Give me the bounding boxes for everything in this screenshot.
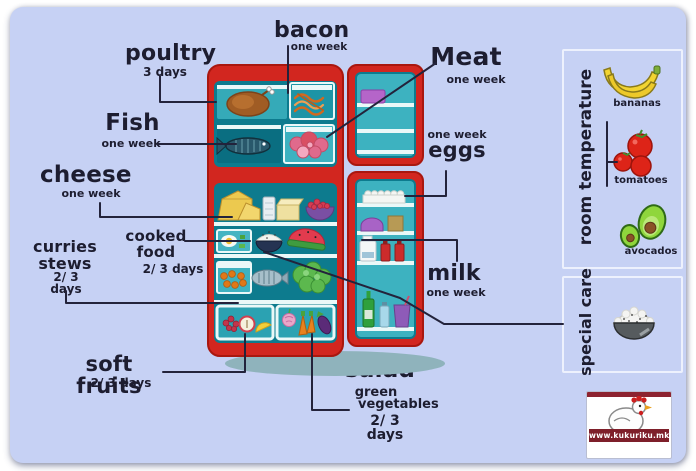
freezer-items-illustration (214, 81, 337, 167)
rice-bowl-illustration (256, 231, 282, 252)
salad-line3: vegetables (358, 398, 436, 411)
wrapped-fish-illustration (252, 270, 288, 286)
curries-stews-duration: 2/ 3 days (37, 271, 95, 295)
soft-fruits-duration: 2/ 3 days (88, 377, 154, 389)
avocados-label: avocados (620, 246, 682, 257)
curries-shelf-items (217, 262, 331, 293)
butter-dish-illustration (361, 218, 383, 231)
bacon-duration: one week (290, 42, 348, 53)
cooked-food-line2: food (137, 243, 176, 261)
bacon-label: bacon (274, 20, 346, 43)
cooked-food-duration: 2/ 3 days (142, 263, 204, 275)
curries-stews-label: curries stews (31, 239, 99, 272)
berry-bowl-illustration (308, 199, 330, 210)
rice-bowl-icon (606, 297, 662, 347)
infographic-page: poultry 3 days bacon one week Meat one w… (0, 0, 696, 471)
cheese-block-illustration (388, 216, 403, 231)
meat-duration: one week (446, 74, 506, 85)
frozen-pack-illustration (361, 90, 385, 103)
logo-website: www.kukuriku.mk (589, 429, 669, 442)
cheese-duration: one week (56, 188, 126, 199)
poultry-label: poultry (125, 43, 209, 66)
cooked-food-label: cooked food (125, 229, 187, 260)
milk-label: milk (424, 263, 484, 286)
fridge-door-bottom-interior (355, 179, 416, 339)
tomatoes-icon (610, 128, 658, 180)
fridge-door-top-interior (355, 72, 416, 158)
freezer-top-shelf (217, 83, 334, 119)
vegetables-drawer (277, 306, 334, 339)
fish-duration: one week (100, 138, 162, 149)
bananas-icon (600, 54, 662, 100)
avocados-icon (616, 200, 670, 250)
fridge-items-illustration (214, 183, 337, 343)
fridge-compartment (214, 183, 337, 343)
special-care-title: special care (576, 267, 598, 377)
eggs-tray-illustration (363, 191, 405, 203)
room-temperature-title: room temperature (576, 52, 598, 262)
logo-box: www.kukuriku.mk (586, 391, 672, 459)
cheese-label: cheese (40, 164, 118, 188)
freezer-compartment (214, 81, 337, 167)
salad-greens-illustration (293, 262, 331, 293)
meat-label: Meat (430, 44, 502, 70)
poultry-duration: 3 days (135, 66, 195, 78)
freezer-bottom-shelf (217, 125, 334, 163)
eggs-label: eggs (426, 140, 488, 162)
cooked-food-shelf-items (217, 226, 327, 252)
milk-duration: one week (422, 287, 490, 298)
soft-fruits-drawer (217, 306, 273, 339)
door-top-illustration (355, 72, 416, 158)
salad-duration: 2/ 3 days (352, 414, 418, 442)
tomatoes-label: tomatoes (610, 175, 672, 186)
watermelon-illustration (287, 226, 327, 250)
bananas-label: bananas (606, 98, 668, 109)
fish-label: Fish (105, 112, 160, 136)
door-bottom-illustration (355, 179, 416, 339)
cheese-shelf-items (218, 191, 334, 220)
